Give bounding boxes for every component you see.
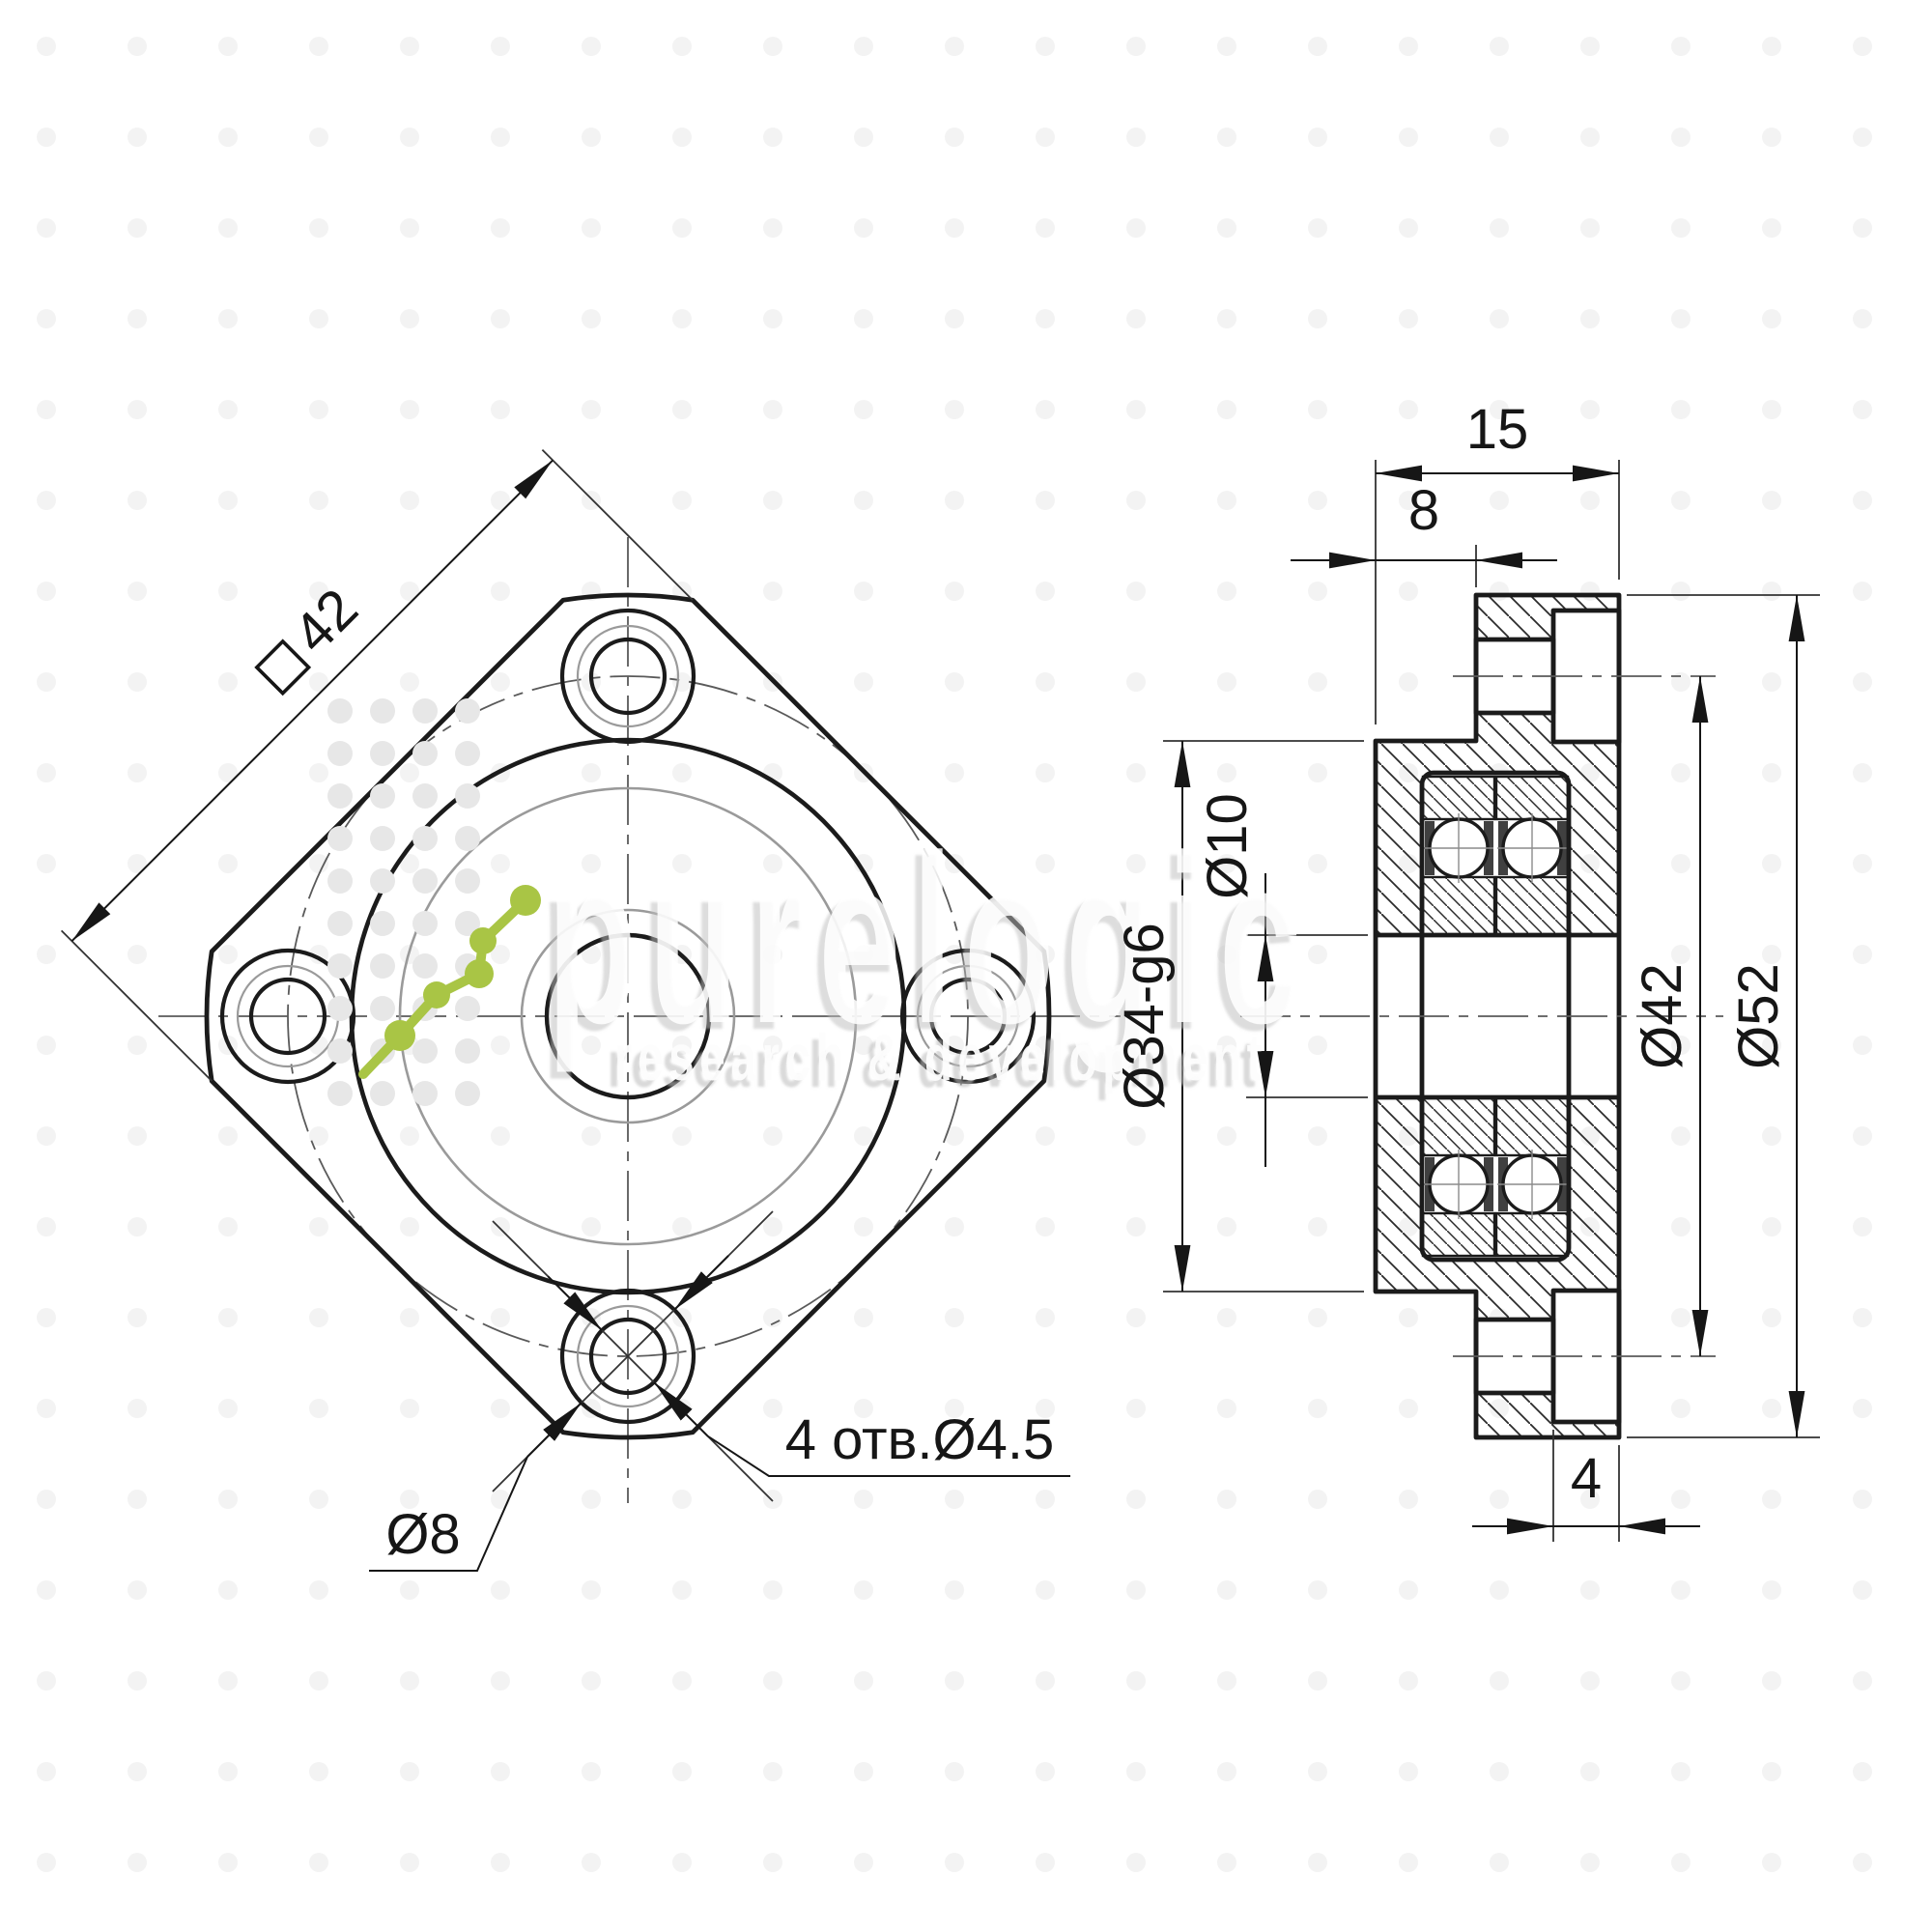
dim-label-15: 15 <box>1466 398 1529 461</box>
dim-label-d8: Ø8 <box>385 1503 460 1566</box>
dim-label-d52: Ø52 <box>1727 963 1790 1069</box>
holes-note-label: 4 отв.Ø4.5 <box>785 1408 1055 1471</box>
drawing-canvas: purelogic research & development 15 8 4 … <box>0 0 1932 1932</box>
dim-label-d34: Ø34-g6 <box>1113 923 1176 1109</box>
dim-label-8: 8 <box>1408 479 1439 542</box>
dim-label-d42: Ø42 <box>1631 963 1693 1069</box>
dim-label-d10: Ø10 <box>1196 793 1259 899</box>
technical-drawing: purelogic research & development 15 8 4 … <box>0 0 1932 1932</box>
dim-label-4: 4 <box>1571 1447 1602 1510</box>
